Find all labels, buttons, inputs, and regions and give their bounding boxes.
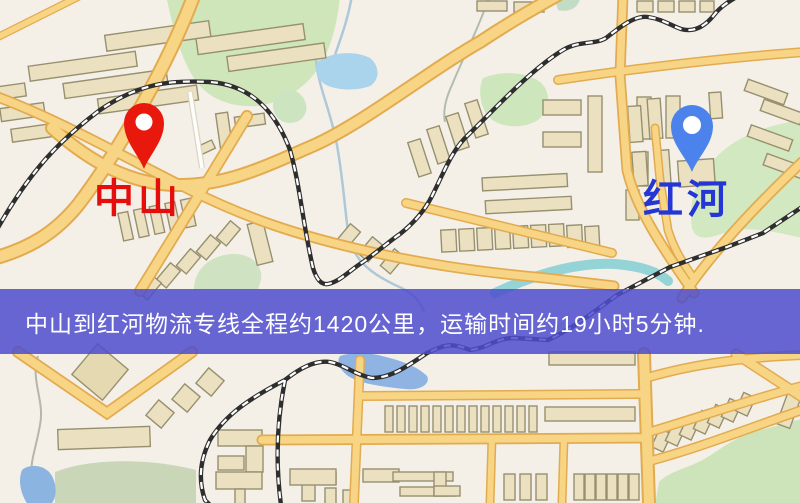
- origin-label: 中山: [94, 179, 182, 219]
- map-screenshot: 中山 红河 中山到红河物流专线全程约1420公里，运输时间约19小时5分钟.: [0, 0, 800, 503]
- route-info-text: 中山到红河物流专线全程约1420公里，运输时间约19小时5分钟.: [25, 305, 705, 339]
- route-info-banner: 中山到红河物流专线全程约1420公里，运输时间约19小时5分钟.: [0, 289, 800, 354]
- map-canvas: [0, 0, 800, 503]
- destination-label: 红河: [643, 180, 731, 220]
- destination-pin-icon: [663, 99, 721, 175]
- origin-pin-icon: [116, 96, 172, 172]
- destination-pin-shape: [671, 105, 713, 172]
- origin-pin-shape: [124, 103, 164, 169]
